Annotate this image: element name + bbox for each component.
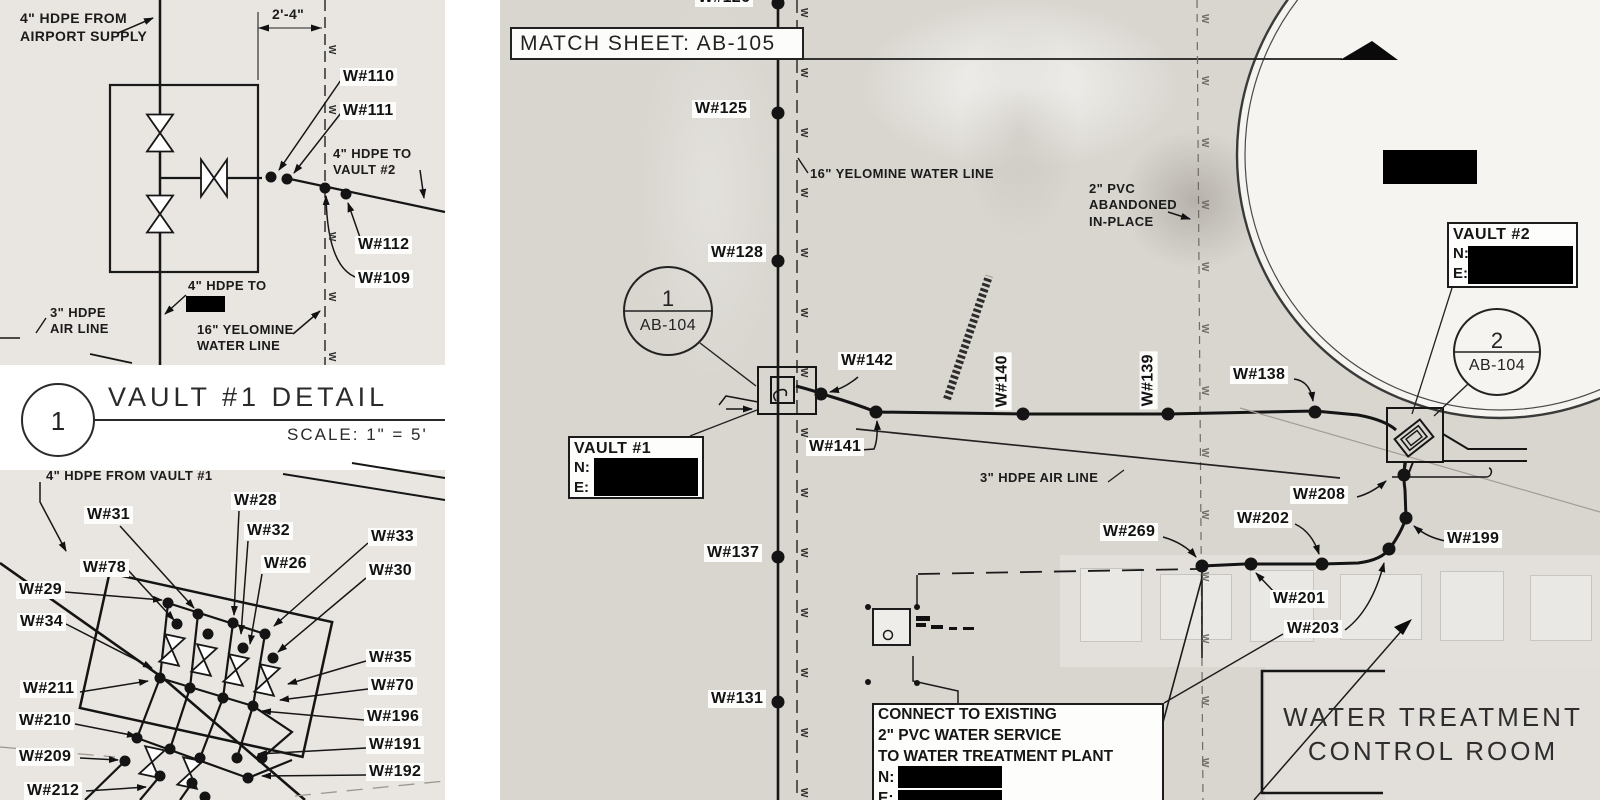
detail-scale: SCALE: 1" = 5' (287, 426, 428, 443)
point-label: W#191 (366, 736, 424, 754)
vault2-title: VAULT #2 (1449, 224, 1576, 244)
aerial-equipment (1340, 574, 1422, 640)
point-label: W#70 (368, 677, 417, 695)
point-label: W#110 (340, 68, 397, 86)
detail-title: VAULT #1 DETAIL (108, 384, 388, 411)
yelomine-note: 16" YELOMINE WATER LINE (197, 322, 294, 355)
callout-1-number: 1 (650, 288, 686, 310)
to-vault2-note: 4" HDPE TO VAULT #2 (333, 146, 412, 179)
point-label: W#140 (994, 352, 1012, 410)
aerial-equipment (1080, 568, 1142, 642)
plan-sheet: WWWWWWWWWWWWWWWWWWWWWWWWWWWWWWWW 4" HDPE… (0, 0, 1600, 800)
point-label: W#32 (244, 522, 293, 540)
connect-line-1: CONNECT TO EXISTING (874, 705, 1162, 726)
connect-line-2: 2" PVC WATER SERVICE (874, 726, 1162, 747)
point-label: W#141 (806, 438, 864, 456)
callout-1-sheet: AB-104 (634, 318, 702, 334)
redaction-box (898, 790, 1002, 800)
pvc-abandoned-note: 2" PVC ABANDONED IN-PLACE (1089, 181, 1177, 230)
aerial-equipment (1160, 574, 1232, 640)
point-label: W#209 (16, 748, 74, 766)
point-label: W#192 (366, 763, 424, 781)
vault1-title: VAULT #1 (570, 438, 702, 458)
point-label: W#125 (692, 100, 750, 118)
callout-2-number: 2 (1479, 330, 1515, 352)
plan-panel (500, 0, 1600, 800)
yelomine-plan-note: 16" YELOMINE WATER LINE (810, 166, 994, 182)
point-label: W#31 (84, 506, 133, 524)
point-label: W#26 (261, 555, 310, 573)
point-label: W#112 (355, 236, 412, 254)
point-label: W#208 (1290, 486, 1348, 504)
detail-number: 1 (40, 408, 76, 434)
air-line-plan-note: 3" HDPE AIR LINE (980, 470, 1098, 486)
point-label: W#30 (366, 562, 415, 580)
point-label: W#137 (704, 544, 762, 562)
point-label: W#142 (838, 352, 896, 370)
point-label: W#78 (80, 559, 129, 577)
point-label: W#269 (1100, 523, 1158, 541)
callout-2-sheet: AB-104 (1463, 358, 1531, 374)
point-label: W#199 (1444, 530, 1502, 548)
point-label: W#109 (355, 270, 413, 288)
point-label: W#202 (1234, 510, 1292, 528)
point-label: W#139 (1140, 351, 1158, 409)
supply-note: 4" HDPE FROM AIRPORT SUPPLY (20, 10, 147, 45)
control-room-label: WATER TREATMENT CONTROL ROOM (1268, 701, 1598, 769)
aerial-equipment (1440, 571, 1504, 641)
vault1-info-box: VAULT #1 N: E: (568, 436, 704, 499)
dimension-label: 2'-4" (272, 6, 304, 24)
point-label: W#210 (16, 712, 74, 730)
point-label: W#131 (708, 690, 766, 708)
point-label: W#34 (17, 613, 66, 631)
aerial-light-patch (860, 0, 1180, 170)
point-label: W#126 (695, 0, 753, 7)
point-label: W#203 (1284, 620, 1342, 638)
aerial-equipment (1530, 575, 1592, 641)
redaction-box (594, 458, 698, 496)
redaction-box (898, 766, 1002, 788)
connect-line-3: TO WATER TREATMENT PLANT (874, 747, 1162, 768)
match-sheet-label: MATCH SHEET: AB-105 (510, 27, 804, 60)
point-label: W#212 (24, 782, 82, 800)
point-label: W#211 (20, 680, 77, 698)
hdpe-to-note: 4" HDPE TO (188, 278, 267, 294)
point-label: W#138 (1230, 366, 1288, 384)
from-vault1-note: 4" HDPE FROM VAULT #1 (46, 468, 213, 484)
aerial-equipment-area (1060, 555, 1600, 667)
point-label: W#29 (16, 581, 65, 599)
point-label: W#28 (231, 492, 280, 510)
redaction-box (186, 296, 225, 312)
connect-note-box: CONNECT TO EXISTING 2" PVC WATER SERVICE… (872, 703, 1164, 800)
vault2-info-box: VAULT #2 N: E: (1447, 222, 1578, 288)
air-line-note: 3" HDPE AIR LINE (50, 305, 109, 338)
point-label: W#201 (1270, 590, 1328, 608)
point-label: W#33 (368, 528, 417, 546)
point-label: W#196 (364, 708, 422, 726)
point-label: W#111 (340, 102, 396, 120)
point-label: W#128 (708, 244, 766, 262)
point-label: W#35 (366, 649, 415, 667)
redaction-box (1468, 246, 1573, 284)
aerial-dark-patch (960, 20, 1080, 240)
